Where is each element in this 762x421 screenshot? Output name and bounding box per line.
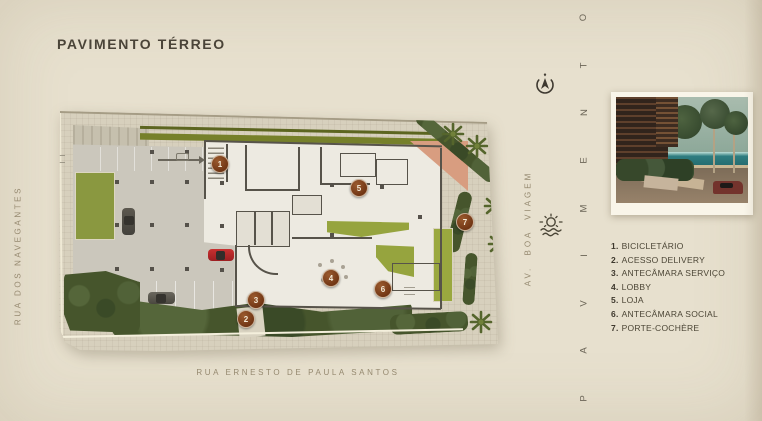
vertical-word-letter: I [578, 254, 589, 257]
palm-tree-icon [440, 121, 466, 147]
shop-room [376, 159, 408, 185]
building-photo-frame [611, 92, 753, 215]
photo-palm-trunk [733, 131, 735, 173]
legend-item: 4.LOBBY [611, 283, 761, 292]
legend-item-number: 6. [611, 310, 619, 319]
column [418, 215, 422, 219]
lot-sidewalk: 1 2 3 4 5 6 7 [40, 95, 520, 365]
legend-item-label: PORTE-COCHÈRE [622, 324, 700, 333]
plan-marker-3: 3 [247, 291, 265, 309]
column [150, 150, 154, 154]
wall [298, 147, 300, 191]
column [330, 183, 334, 187]
palm-tree-icon [464, 133, 490, 159]
legend-item: 3.ANTECÂMARA SERVIÇO [611, 269, 761, 278]
photo-building-facade [656, 97, 678, 147]
legend-item: 6.ANTECÂMARA SOCIAL [611, 310, 761, 319]
gray-car [122, 208, 135, 235]
column [185, 223, 189, 227]
wall [245, 189, 299, 191]
gray-car [148, 292, 175, 304]
legend-item-number: 2. [611, 256, 619, 265]
palm-tree-icon [486, 231, 512, 257]
site-plan: 1 2 3 4 5 6 7 [40, 95, 520, 365]
hedge [462, 253, 478, 306]
legend-item-number: 4. [611, 283, 619, 292]
lawn [75, 172, 115, 240]
column [220, 181, 224, 185]
red-car [208, 249, 234, 261]
photo-car [713, 181, 743, 194]
lobby-chair [318, 263, 322, 267]
column [380, 185, 384, 189]
legend-item-label: LOJA [622, 296, 644, 305]
vertical-word-letter: M [578, 204, 589, 212]
legend-item-number: 5. [611, 296, 619, 305]
column [150, 223, 154, 227]
legend-item-label: ACESSO DELIVERY [622, 256, 705, 265]
planter-edge [140, 126, 442, 135]
brochure-page: PAVIMENTO TÉRREO [0, 0, 762, 421]
wall [320, 147, 322, 185]
vertical-word-letter: O [578, 14, 589, 21]
vertical-word-letter: T [579, 62, 590, 68]
micro-label [48, 255, 59, 263]
plan-marker-2: 2 [237, 310, 255, 328]
plan-marker-1: 1 [211, 155, 229, 173]
curb-left [59, 113, 62, 335]
micro-label [404, 287, 415, 295]
legend-item-number: 3. [611, 269, 619, 278]
wall [204, 141, 206, 199]
social-antechamber-room [392, 263, 440, 291]
car-window [216, 251, 225, 260]
vertical-word-letter: N [579, 109, 590, 116]
legend-item-label: LOBBY [622, 283, 652, 292]
wall [235, 245, 237, 306]
car-window [156, 294, 166, 303]
wall [245, 145, 247, 191]
legend-item-number: 1. [611, 242, 619, 251]
legend-item: 2.ACESSO DELIVERY [611, 256, 761, 265]
photo-palm-trunk [713, 125, 715, 173]
wall [440, 148, 442, 309]
vertical-word-letter: V [579, 300, 590, 306]
legend-item-label: BICICLETÁRIO [622, 242, 684, 251]
stair-elevator-core [236, 211, 290, 247]
column [115, 267, 119, 271]
shop-room [340, 153, 376, 177]
legend-item-label: ANTECÂMARA SOCIAL [622, 310, 718, 319]
car-window [124, 216, 134, 225]
lobby-chair [330, 259, 334, 263]
sun-over-sea-icon [537, 212, 565, 238]
street-label-rua-ernesto-de-paula-santos: RUA ERNESTO DE PAULA SANTOS [148, 368, 448, 377]
vertical-word: OTNEMIVAP [574, 12, 594, 404]
page-title: PAVIMENTO TÉRREO [57, 36, 226, 52]
legend: 1.BICICLETÁRIO 2.ACESSO DELIVERY 3.ANTEC… [611, 242, 761, 337]
building-photo [616, 97, 748, 203]
north-compass-icon [534, 73, 556, 97]
legend-item-number: 7. [611, 324, 619, 333]
column [185, 267, 189, 271]
vertical-word-letter: A [579, 348, 590, 354]
plan-marker-5: 5 [350, 179, 368, 197]
column [150, 267, 154, 271]
column [330, 233, 334, 237]
column [115, 180, 119, 184]
street-label-rua-dos-navegantes: RUA DOS NAVEGANTES [14, 176, 23, 336]
legend-item: 7.PORTE-COCHÈRE [611, 324, 761, 333]
hedge [390, 311, 469, 335]
plan-marker-4: 4 [322, 269, 340, 287]
service-room [292, 195, 322, 215]
column [220, 224, 224, 228]
garden-shrubs [64, 271, 140, 333]
palm-tree-icon [482, 193, 508, 219]
column [115, 223, 119, 227]
plan-marker-6: 6 [374, 280, 392, 298]
column [220, 268, 224, 272]
photo-car-window [720, 183, 733, 188]
street-label-av-boa-viagem: AV. BOA VIAGEM [524, 149, 533, 309]
plan-marker-7: 7 [456, 213, 474, 231]
car-outline-glyph [176, 153, 189, 161]
legend-item: 1.BICICLETÁRIO [611, 242, 761, 251]
micro-label [54, 155, 65, 163]
wall [271, 212, 273, 245]
column [185, 180, 189, 184]
lobby-chair [344, 275, 348, 279]
wall [292, 237, 372, 239]
photo-tree [724, 111, 748, 135]
lobby-chair [341, 265, 345, 269]
legend-item-label: ANTECÂMARA SERVIÇO [622, 269, 726, 278]
vertical-word-letter: P [579, 395, 590, 401]
column [150, 180, 154, 184]
palm-tree-icon [468, 309, 494, 335]
vertical-word-letter: E [579, 157, 590, 163]
legend-item: 5.LOJA [611, 296, 761, 305]
wall [254, 212, 256, 245]
